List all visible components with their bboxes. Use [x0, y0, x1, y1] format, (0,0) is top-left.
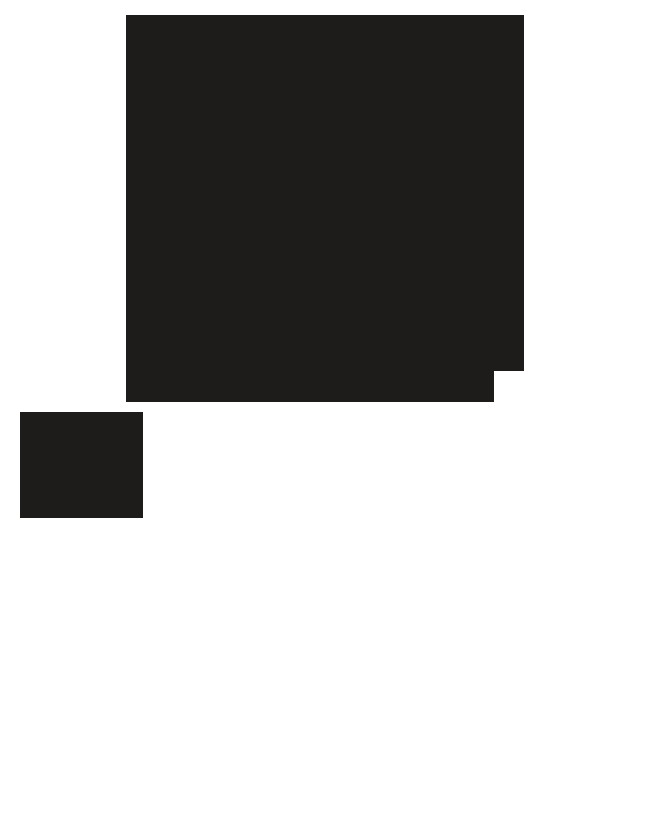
large-dark-image-block-main	[126, 15, 524, 371]
small-dark-image-block	[20, 412, 143, 518]
page-background	[0, 0, 650, 820]
large-dark-image-block-extension	[126, 371, 494, 402]
